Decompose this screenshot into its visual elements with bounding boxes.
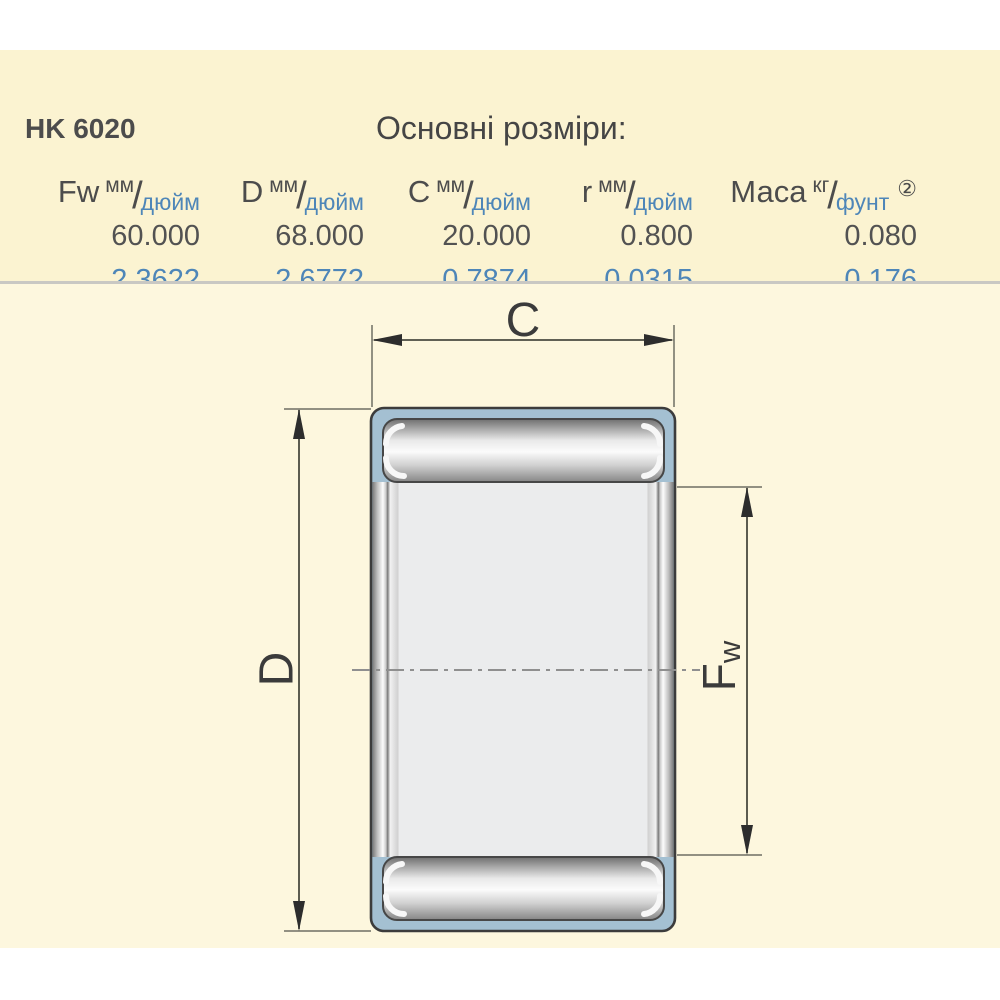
unit-pound: фунт: [836, 189, 889, 215]
footnote-marker-icon: ②: [897, 176, 917, 201]
arrow-left-icon: [372, 334, 402, 346]
column-symbol-c: C: [408, 174, 430, 209]
dim-label-d: D: [251, 652, 304, 687]
dim-label-c: C: [506, 294, 541, 347]
arrow-right-icon: [644, 334, 674, 346]
dimension-c: C: [372, 294, 674, 407]
dim-label-fw: Fw: [693, 640, 747, 691]
bearing-diagram: C D Fw: [0, 284, 1000, 948]
column-symbol-fw: Fw: [58, 174, 99, 209]
needle-roller-top: [383, 419, 664, 482]
column-header-r: rмм/дюйм: [433, 174, 693, 218]
spec-header-panel: HK 6020 Основні розміри: Fwмм/дюйм Dмм/д…: [0, 50, 1000, 281]
drawing-panel: C D Fw: [0, 284, 1000, 948]
arrow-down-icon: [741, 825, 753, 855]
column-symbol-d: D: [241, 174, 263, 209]
unit-mm: мм: [598, 174, 627, 197]
section-title: Основні розміри:: [376, 110, 627, 147]
dimension-fw: Fw: [677, 487, 762, 855]
arrow-up-icon: [741, 487, 753, 517]
product-code: HK 6020: [25, 113, 136, 145]
column-symbol-mass: Маса: [730, 174, 806, 209]
arrow-up-icon: [293, 409, 305, 439]
dim-label-fw-sub: w: [712, 640, 747, 664]
page: HK 6020 Основні розміри: Fwмм/дюйм Dмм/д…: [0, 0, 1000, 1000]
arrow-down-icon: [293, 901, 305, 931]
value-mass-kg: 0.080: [657, 220, 917, 253]
column-symbol-r: r: [582, 174, 592, 209]
value-r-mm: 0.800: [433, 220, 693, 253]
column-header-mass: Масакг/фунт②: [657, 174, 917, 218]
needle-roller-bottom: [383, 857, 664, 920]
dim-label-fw-main: F: [693, 663, 745, 691]
